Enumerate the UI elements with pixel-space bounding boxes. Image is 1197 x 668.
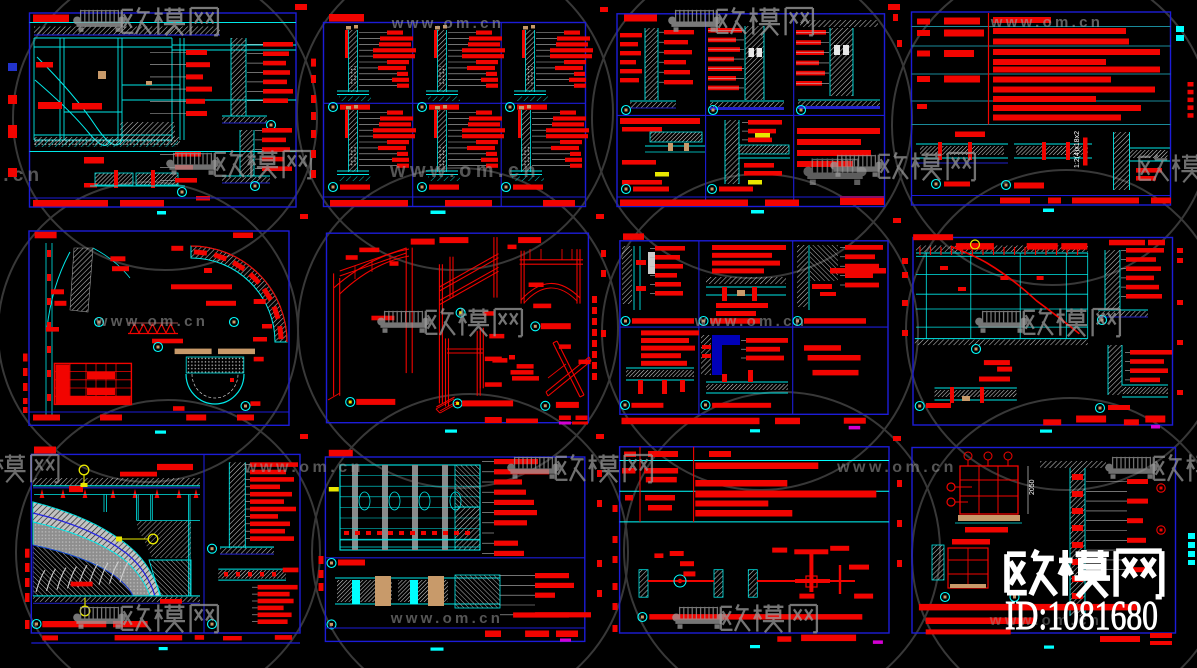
svg-text:www.om.cn: www.om.cn xyxy=(990,14,1104,31)
svg-text:1:2(4)x18x2: 1:2(4)x18x2 xyxy=(1074,131,1081,168)
svg-text:www.om.cn: www.om.cn xyxy=(389,160,540,182)
svg-text:www.om.cn: www.om.cn xyxy=(390,610,504,627)
svg-text:www.om.cn: www.om.cn xyxy=(0,165,43,186)
svg-text:www.om.cn: www.om.cn xyxy=(243,459,364,476)
svg-text:ID:1081680: ID:1081680 xyxy=(1005,592,1158,638)
svg-text:2050: 2050 xyxy=(1029,479,1036,495)
svg-text:www.om.cn: www.om.cn xyxy=(694,313,808,330)
svg-text:www.om.cn: www.om.cn xyxy=(95,313,209,330)
svg-text:www.om.cn: www.om.cn xyxy=(836,459,957,476)
svg-text:www.om.cn: www.om.cn xyxy=(391,15,505,32)
